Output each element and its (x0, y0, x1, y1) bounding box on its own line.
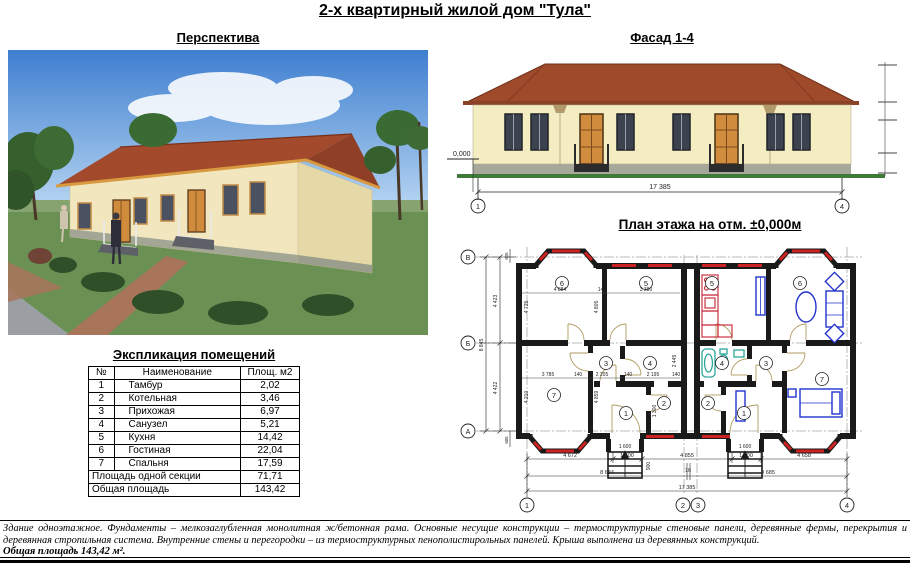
table-footer-row: Общая площадь 143,42 (89, 484, 300, 497)
left-dim-labels: 4 423 4 422 8 845 605 605 (479, 252, 509, 444)
svg-text:1: 1 (624, 409, 628, 418)
svg-text:4 423: 4 423 (493, 295, 499, 308)
facade-svg: 0,000 17 385 1 4 (445, 52, 910, 215)
svg-text:900: 900 (646, 462, 652, 471)
table-row: 4 Санузел 5,21 (89, 419, 300, 432)
svg-text:4: 4 (845, 501, 849, 510)
room-area: 22,04 (241, 445, 300, 458)
svg-text:4 859: 4 859 (594, 391, 600, 404)
perspective-rendering (8, 50, 428, 335)
svg-text:2: 2 (681, 501, 685, 510)
svg-text:4: 4 (720, 359, 724, 368)
left-dim-lines (480, 249, 516, 447)
facade-drawing: 0,000 17 385 1 4 (445, 52, 910, 215)
furniture (736, 272, 844, 421)
facade-eave (463, 101, 859, 105)
left-axis-markers: В Б А (461, 250, 475, 438)
room-no: 1 (89, 380, 115, 393)
room-name: Гостиная (114, 445, 241, 458)
svg-text:2: 2 (706, 399, 710, 408)
svg-text:17 385: 17 385 (679, 485, 696, 491)
svg-text:1 600: 1 600 (620, 453, 634, 459)
svg-text:3 785: 3 785 (542, 372, 555, 378)
room-schedule-table: № Наименование Площ. м2 1 Тамбур 2,02 2 … (88, 366, 300, 497)
room-name: Тамбур (114, 380, 241, 393)
room-no: 6 (89, 445, 115, 458)
svg-text:605: 605 (504, 252, 509, 260)
svg-text:3 380: 3 380 (640, 287, 653, 293)
facade-heading: Фасад 1-4 (445, 30, 879, 45)
elevation-ticks (878, 62, 897, 176)
inner-dim-labels: 4 884 140 3 380 3 785 140 2 205 140 2 19… (524, 287, 751, 470)
svg-text:3: 3 (764, 359, 768, 368)
footer-label: Площадь одной секции (89, 471, 241, 484)
facade-plinth (473, 164, 851, 174)
svg-text:605: 605 (504, 436, 509, 444)
svg-text:4 422: 4 422 (493, 382, 499, 395)
table-header-row: № Наименование Площ. м2 (89, 367, 300, 380)
page-title: 2-х квартирный жилой дом "Тула" (0, 2, 910, 20)
table-row: 5 Кухня 14,42 (89, 432, 300, 445)
sheet-bottom-border (0, 557, 910, 563)
svg-text:1 600: 1 600 (739, 453, 753, 459)
svg-text:1: 1 (476, 202, 480, 211)
room-area: 2,02 (241, 380, 300, 393)
svg-text:4 805: 4 805 (594, 301, 600, 314)
svg-text:140: 140 (598, 287, 607, 293)
room-area: 14,42 (241, 432, 300, 445)
room-no: 2 (89, 393, 115, 406)
svg-text:3: 3 (696, 501, 700, 510)
svg-text:0,000: 0,000 (453, 151, 471, 158)
room-name: Прихожая (114, 406, 241, 419)
plan-heading: План этажа на отм. ±0,000м (485, 217, 910, 232)
svg-text:5: 5 (710, 279, 714, 288)
svg-text:7: 7 (820, 375, 824, 384)
room-no: 4 (89, 419, 115, 432)
room-name: Котельная (114, 393, 241, 406)
room-area: 5,21 (241, 419, 300, 432)
svg-text:В: В (466, 255, 471, 262)
facade-width-dim: 17 385 (649, 184, 671, 191)
svg-text:9 685: 9 685 (761, 470, 775, 476)
svg-text:А: А (466, 429, 471, 436)
construction-description: Здание одноэтажное. Фундаменты – мелкоза… (3, 523, 907, 546)
room-no: 3 (89, 406, 115, 419)
table-footer-row: Площадь одной секции 71,71 (89, 471, 300, 484)
svg-text:16: 16 (685, 468, 691, 474)
svg-text:140: 140 (672, 372, 681, 378)
perspective-heading: Перспектива (8, 30, 428, 45)
col-header-name: Наименование (114, 367, 241, 380)
perspective-svg (8, 50, 428, 335)
svg-text:4 725: 4 725 (524, 301, 530, 314)
footer-label: Общая площадь (89, 484, 241, 497)
svg-text:140: 140 (624, 372, 633, 378)
svg-text:4 210: 4 210 (524, 391, 530, 404)
svg-text:4 658: 4 658 (797, 453, 811, 459)
schedule-heading: Экспликация помещений (88, 347, 300, 362)
floor-plan-drawing: 6 5 7 3 4 1 2 5 6 4 3 1 2 7 4 884 140 3 … (450, 235, 910, 517)
room-name: Кухня (114, 432, 241, 445)
room-name: Спальня (114, 458, 241, 471)
description-divider (0, 520, 910, 521)
svg-text:140: 140 (574, 372, 583, 378)
svg-text:3: 3 (604, 359, 608, 368)
footer-value: 143,42 (241, 484, 300, 497)
facade-roof (463, 64, 859, 104)
svg-text:4: 4 (840, 202, 844, 211)
col-header-number: № (89, 367, 115, 380)
svg-text:1 300: 1 300 (652, 405, 658, 418)
svg-text:1: 1 (742, 409, 746, 418)
svg-text:1: 1 (525, 501, 529, 510)
svg-text:2 205: 2 205 (596, 372, 609, 378)
facade-axis-markers: 1 4 (471, 199, 849, 213)
bottom-axis-markers: 1 2 3 4 (520, 498, 854, 512)
room-area: 17,59 (241, 458, 300, 471)
col-header-area: Площ. м2 (241, 367, 300, 380)
svg-text:2 445: 2 445 (672, 355, 678, 368)
room-no: 5 (89, 432, 115, 445)
svg-text:Б: Б (466, 341, 471, 348)
svg-text:2 195: 2 195 (647, 372, 660, 378)
svg-text:2: 2 (662, 399, 666, 408)
svg-text:1 600: 1 600 (739, 444, 752, 450)
room-no: 7 (89, 458, 115, 471)
table-row: 2 Котельная 3,46 (89, 393, 300, 406)
svg-text:4 855: 4 855 (680, 453, 694, 459)
floor-plan-svg: 6 5 7 3 4 1 2 5 6 4 3 1 2 7 4 884 140 3 … (450, 235, 910, 517)
room-name: Санузел (114, 419, 241, 432)
table-row: 7 Спальня 17,59 (89, 458, 300, 471)
drawing-sheet: 2-х квартирный жилой дом "Тула" Перспект… (0, 0, 910, 564)
room-area: 6,97 (241, 406, 300, 419)
svg-text:8 845: 8 845 (479, 339, 485, 352)
svg-text:7: 7 (552, 391, 556, 400)
svg-text:6: 6 (798, 279, 802, 288)
svg-text:4: 4 (648, 359, 652, 368)
svg-text:8 684: 8 684 (600, 470, 614, 476)
table-row: 6 Гостиная 22,04 (89, 445, 300, 458)
svg-text:1 600: 1 600 (619, 444, 632, 450)
table-row: 3 Прихожая 6,97 (89, 406, 300, 419)
table-row: 1 Тамбур 2,02 (89, 380, 300, 393)
footer-value: 71,71 (241, 471, 300, 484)
room-area: 3,46 (241, 393, 300, 406)
svg-text:4 672: 4 672 (563, 453, 577, 459)
svg-text:4 884: 4 884 (554, 287, 567, 293)
total-area-note: Общая площадь 143,42 м². (3, 546, 907, 557)
